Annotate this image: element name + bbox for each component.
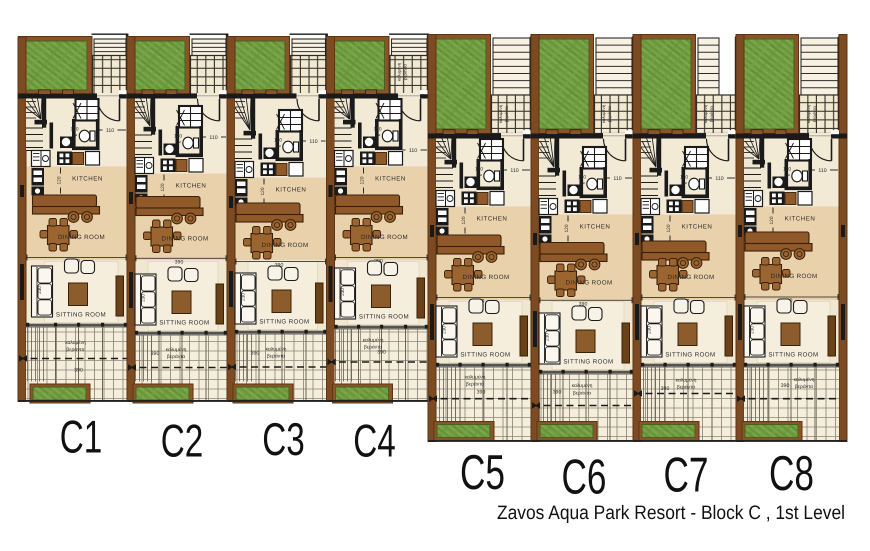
svg-text:KITCHEN: KITCHEN — [276, 187, 307, 194]
svg-text:SITTING ROOM: SITTING ROOM — [563, 359, 613, 366]
svg-text:καλυμένη: καλυμένη — [498, 104, 503, 123]
svg-text:120: 120 — [57, 176, 63, 184]
svg-text:καλυμένη: καλυμένη — [266, 347, 287, 353]
svg-text:KITCHEN: KITCHEN — [785, 216, 816, 223]
svg-text:170: 170 — [70, 127, 78, 133]
svg-text:βεράντα: βεράντα — [795, 384, 813, 390]
svg-text:DINING ROOM: DINING ROOM — [667, 274, 714, 281]
svg-text:120: 120 — [360, 176, 366, 184]
svg-text:DINING ROOM: DINING ROOM — [58, 234, 105, 241]
svg-text:Zavos Aqua Park Resort - Block: Zavos Aqua Park Resort - Block C , 1st L… — [497, 502, 845, 524]
svg-text:110: 110 — [613, 176, 621, 182]
svg-text:καλυμένη: καλυμένη — [676, 378, 697, 384]
svg-text:390: 390 — [661, 386, 670, 392]
svg-text:SITTING ROOM: SITTING ROOM — [665, 352, 715, 359]
svg-text:βεράντα: βεράντα — [573, 391, 591, 397]
svg-text:καλυμένη: καλυμένη — [601, 104, 606, 123]
svg-text:βεράντα: βεράντα — [403, 64, 408, 80]
svg-text:βεράντα: βεράντα — [607, 106, 612, 122]
svg-text:ø: ø — [378, 133, 380, 137]
svg-text:110: 110 — [818, 168, 826, 174]
svg-text:230: 230 — [241, 293, 246, 301]
svg-text:230: 230 — [647, 326, 652, 334]
svg-text:230: 230 — [340, 288, 345, 296]
svg-text:ø: ø — [179, 140, 181, 144]
svg-text:120: 120 — [160, 183, 166, 191]
svg-text:390: 390 — [175, 259, 184, 265]
svg-text:SITTING ROOM: SITTING ROOM — [159, 320, 209, 327]
svg-text:ø: ø — [480, 173, 482, 177]
svg-text:C7: C7 — [664, 449, 709, 503]
svg-text:DINING ROOM: DINING ROOM — [565, 280, 612, 287]
svg-text:βεράντα: βεράντα — [812, 106, 817, 122]
svg-text:170: 170 — [475, 167, 483, 173]
svg-text:καλυμένη: καλυμένη — [572, 383, 593, 389]
svg-text:390: 390 — [553, 390, 562, 396]
svg-text:καλυμένη: καλυμένη — [363, 338, 384, 344]
svg-text:230: 230 — [442, 326, 447, 334]
svg-text:βεράντα: βεράντα — [267, 354, 285, 360]
svg-text:390: 390 — [477, 390, 486, 396]
svg-text:C4: C4 — [353, 415, 396, 467]
svg-text:KITCHEN: KITCHEN — [682, 224, 713, 231]
svg-text:SITTING ROOM: SITTING ROOM — [460, 352, 510, 359]
svg-text:110: 110 — [510, 168, 518, 174]
svg-text:βεράντα: βεράντα — [466, 382, 484, 388]
svg-text:390: 390 — [74, 368, 83, 374]
svg-text:DINING ROOM: DINING ROOM — [462, 274, 509, 281]
svg-text:KITCHEN: KITCHEN — [72, 176, 103, 183]
svg-text:110: 110 — [309, 139, 317, 145]
svg-text:230: 230 — [141, 294, 146, 302]
svg-text:βεράντα: βεράντα — [504, 106, 509, 122]
svg-text:KITCHEN: KITCHEN — [477, 216, 508, 223]
svg-text:βεράντα: βεράντα — [677, 385, 695, 391]
svg-text:καλυμένη: καλυμένη — [166, 347, 187, 353]
svg-text:DINING ROOM: DINING ROOM — [361, 234, 408, 241]
svg-text:KITCHEN: KITCHEN — [176, 183, 207, 190]
svg-text:170: 170 — [680, 175, 688, 181]
svg-text:καλυμένη: καλυμένη — [806, 104, 811, 123]
svg-text:KITCHEN: KITCHEN — [375, 176, 406, 183]
svg-text:καλυμένη: καλυμένη — [465, 375, 486, 381]
svg-text:110: 110 — [106, 128, 114, 134]
svg-text:390: 390 — [377, 350, 386, 356]
svg-text:120: 120 — [564, 224, 570, 232]
svg-text:ø: ø — [685, 181, 687, 185]
svg-text:230: 230 — [750, 326, 755, 334]
svg-text:C2: C2 — [161, 415, 204, 467]
svg-text:βεράντα: βεράντα — [167, 354, 185, 360]
svg-text:βεράντα: βεράντα — [66, 347, 84, 353]
svg-text:καλυμένη: καλυμένη — [65, 340, 86, 346]
svg-text:120: 120 — [769, 216, 775, 224]
svg-text:DINING ROOM: DINING ROOM — [261, 242, 308, 249]
svg-text:C8: C8 — [769, 447, 814, 501]
svg-text:ø: ø — [279, 144, 281, 148]
svg-text:390: 390 — [251, 351, 260, 357]
svg-text:SITTING ROOM: SITTING ROOM — [768, 352, 818, 359]
svg-text:SITTING ROOM: SITTING ROOM — [359, 314, 409, 321]
svg-text:ø: ø — [788, 173, 790, 177]
svg-text:C1: C1 — [60, 411, 103, 463]
svg-text:καλυμένη: καλυμένη — [703, 104, 708, 123]
svg-text:SITTING ROOM: SITTING ROOM — [56, 312, 106, 319]
svg-text:καλυμένη: καλυμένη — [397, 62, 402, 81]
svg-text:110: 110 — [209, 135, 217, 141]
svg-text:390: 390 — [781, 383, 790, 389]
svg-text:C5: C5 — [460, 446, 505, 500]
svg-text:βεράντα: βεράντα — [709, 106, 714, 122]
svg-text:110: 110 — [409, 148, 417, 154]
svg-text:230: 230 — [545, 333, 550, 341]
svg-text:390: 390 — [151, 351, 160, 357]
svg-text:KITCHEN: KITCHEN — [580, 224, 611, 231]
svg-text:120: 120 — [461, 216, 467, 224]
svg-text:ø: ø — [583, 181, 585, 185]
svg-text:120: 120 — [260, 187, 266, 195]
svg-text:ø: ø — [75, 133, 77, 137]
svg-text:170: 170 — [578, 175, 586, 181]
svg-text:C3: C3 — [262, 413, 305, 465]
svg-text:DINING ROOM: DINING ROOM — [770, 273, 817, 280]
svg-text:170: 170 — [373, 127, 381, 133]
svg-text:110: 110 — [715, 176, 723, 182]
svg-text:170: 170 — [174, 134, 182, 140]
svg-text:230: 230 — [37, 286, 42, 294]
svg-text:120: 120 — [666, 224, 672, 232]
svg-text:DINING ROOM: DINING ROOM — [161, 236, 208, 243]
svg-text:170: 170 — [783, 167, 791, 173]
svg-text:C6: C6 — [562, 451, 607, 505]
svg-text:SITTING ROOM: SITTING ROOM — [259, 319, 309, 326]
svg-text:170: 170 — [274, 138, 282, 144]
svg-text:καλυμένη: καλυμένη — [794, 377, 815, 383]
